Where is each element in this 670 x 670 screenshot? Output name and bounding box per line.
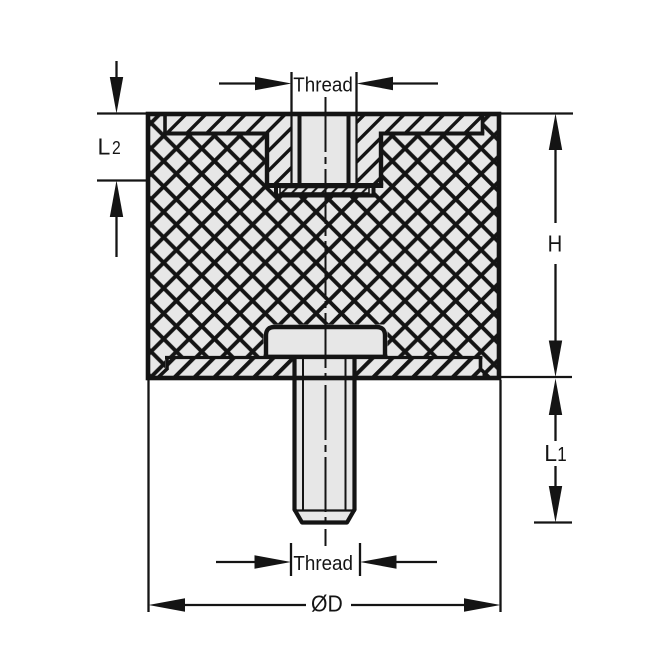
- svg-text:L: L: [98, 134, 111, 160]
- svg-text:2: 2: [112, 137, 121, 159]
- svg-text:L: L: [544, 440, 557, 466]
- svg-text:Thread: Thread: [293, 552, 353, 575]
- svg-text:H: H: [548, 230, 563, 257]
- svg-text:ØD: ØD: [311, 591, 343, 617]
- svg-text:1: 1: [557, 443, 566, 466]
- svg-text:Thread: Thread: [293, 74, 353, 97]
